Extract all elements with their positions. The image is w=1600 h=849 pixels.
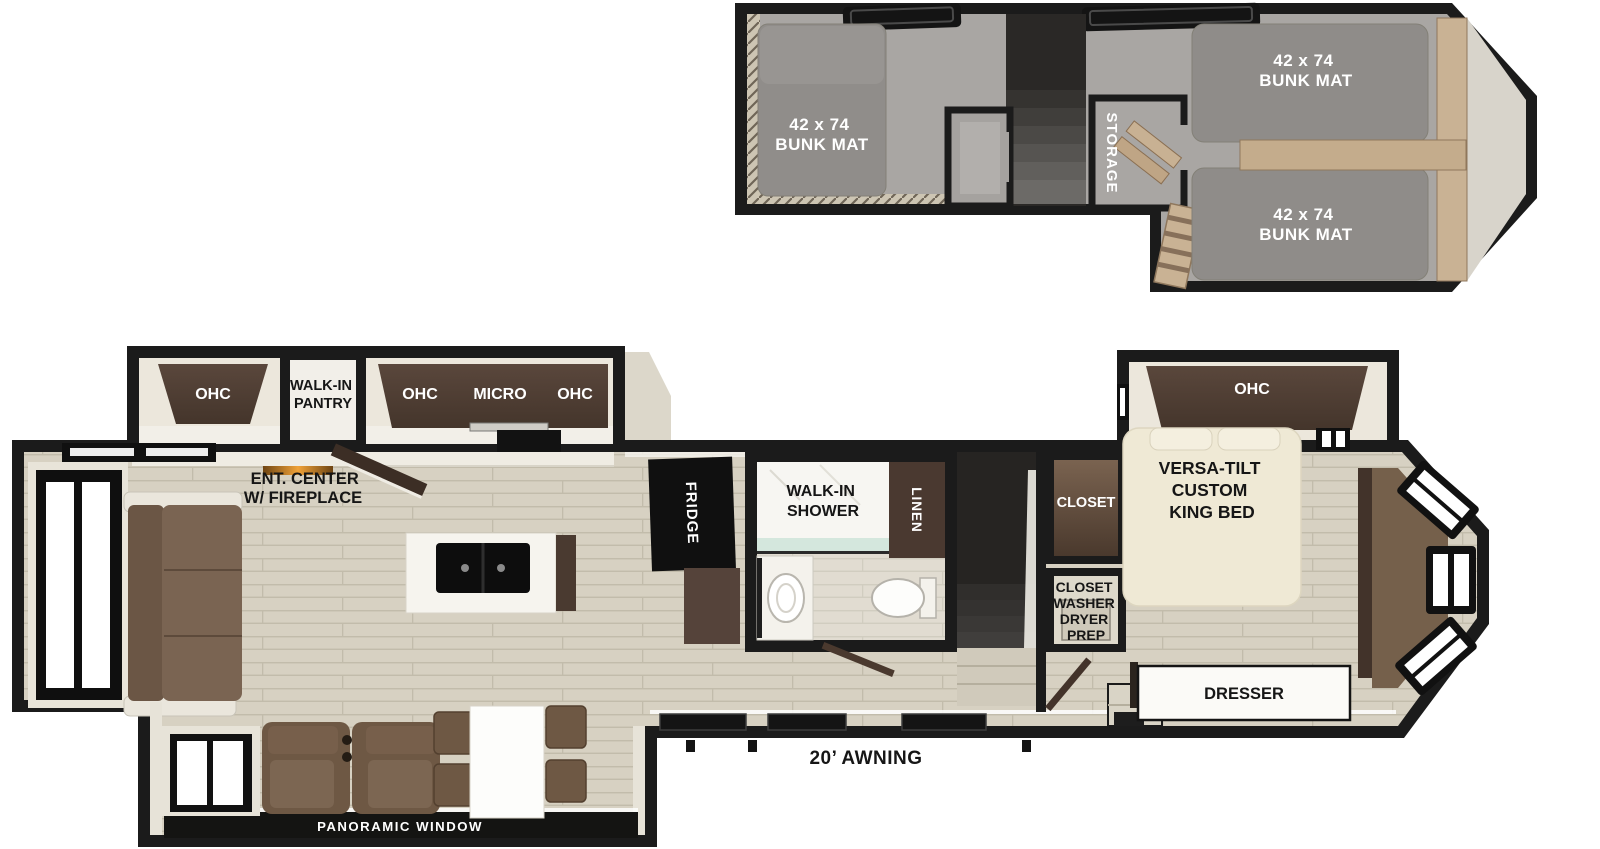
ohc-kitchen-left-label: OHC — [402, 386, 438, 403]
kitchen-counter-edge — [368, 465, 614, 467]
ent-center-label: ENT. CENTER W/ FIREPLACE — [244, 470, 364, 507]
king-bed: VERSA-TILT CUSTOM KING BED — [1123, 428, 1301, 606]
loft-closet-room — [948, 110, 1010, 206]
cupholder — [342, 735, 352, 745]
ohc-rear-label: OHC — [195, 386, 231, 403]
closet-label: CLOSET — [1057, 495, 1116, 511]
king-bed-line3: KING BED — [1169, 502, 1255, 522]
bunk-mat-bottom-right: 42 x 74 BUNK MAT — [1192, 168, 1428, 280]
dinette-chair — [434, 712, 474, 754]
panoramic-window-label: PANORAMIC WINDOW — [317, 819, 483, 834]
washer-dryer-prep: CLOSET WASHER DRYER PREP — [1046, 568, 1126, 652]
front-cap — [1358, 459, 1480, 697]
micro-label: MICRO — [473, 386, 526, 403]
bunk-bottomright-name-label: BUNK MAT — [1259, 225, 1353, 244]
shower-label-2: SHOWER — [787, 503, 859, 520]
pillow-left — [1150, 428, 1212, 450]
wd-label-4: PREP — [1067, 627, 1105, 643]
walk-in-shower: WALK-IN SHOWER — [757, 462, 889, 554]
svg-text:VERSA-TILT CUSTOM: VERSA-TILT CUSTOM KING BED — [1159, 458, 1266, 522]
king-bed-line1: VERSA-TILT — [1159, 458, 1261, 478]
front-cap-carpet-edge — [1358, 468, 1372, 678]
linen-label: LINEN — [909, 487, 924, 533]
shower-label-1: WALK-IN — [787, 483, 855, 500]
ent-center-line1: ENT. CENTER — [251, 470, 359, 488]
sofa — [124, 492, 242, 716]
wd-label-1: CLOSET — [1056, 579, 1113, 595]
ohc-kitchen-right-label: OHC — [557, 386, 593, 403]
dresser-label: DRESSER — [1204, 685, 1284, 703]
dinette-chair — [546, 706, 586, 748]
stairs-to-loft — [957, 450, 1046, 712]
bunk-divider-wood-horizontal — [1240, 140, 1466, 170]
rear-window — [62, 443, 216, 462]
kitchen-island — [406, 533, 576, 613]
storage-room: STORAGE — [1092, 98, 1188, 208]
dinette-table — [470, 706, 544, 818]
loft-floorplan: 42 x 74 BUNK MAT — [735, 3, 1537, 292]
rv-floorplan-page: 42 x 74 BUNK MAT — [0, 0, 1600, 849]
kitchen-slide-return-wall — [617, 352, 671, 450]
bunk-topright-name-label: BUNK MAT — [1259, 71, 1353, 90]
bedroom-slide-window-left — [1117, 384, 1129, 420]
ohc-cabinet-rear: OHC — [158, 364, 268, 424]
side-window — [28, 462, 128, 708]
bedroom-ohc-cabinet: OHC — [1146, 366, 1368, 430]
cupholder — [342, 752, 352, 762]
bunk-bottomright-size-label: 42 x 74 — [1273, 205, 1333, 224]
awning-label: 20’ AWNING — [809, 748, 922, 769]
pantry-label-1: WALK-IN — [290, 378, 352, 394]
wd-label-2: WASHER — [1053, 595, 1114, 611]
bunk-topright-size-label: 42 x 74 — [1273, 51, 1333, 70]
kitchen-ohc-micro-cabinet: OHC MICRO OHC — [378, 364, 608, 428]
walk-in-pantry: WALK-IN PANTRY — [280, 350, 366, 450]
king-bed-line2: CUSTOM — [1172, 480, 1248, 500]
vanity-sink — [757, 556, 813, 640]
linen-cabinet: LINEN — [889, 462, 945, 558]
bunk-left-size-label: 42 x 74 — [789, 115, 849, 134]
island-sink — [436, 543, 530, 593]
dresser: DRESSER — [1130, 662, 1350, 720]
svg-text:ENT. CENTER W/ FIREPLA: ENT. CENTER W/ FIREPLACE — [244, 470, 364, 507]
floorplan-canvas: 42 x 74 BUNK MAT — [0, 0, 1600, 849]
loft-stairs — [1006, 14, 1086, 206]
main-floorplan: OHC WALK-IN PANTRY OHC MICRO OHC — [12, 346, 1489, 847]
toilet — [872, 578, 936, 618]
pantry-label-2: PANTRY — [294, 396, 352, 412]
dinette-chair — [546, 760, 586, 802]
bunk-left-name-label: BUNK MAT — [775, 135, 869, 154]
ent-center-line2: W/ FIREPLACE — [244, 489, 362, 507]
storage-label: STORAGE — [1103, 113, 1120, 194]
entry-mats — [660, 714, 986, 730]
bunk-mat-top-right: 42 x 74 BUNK MAT — [1192, 24, 1428, 142]
front-cap-window-middle — [1426, 546, 1476, 614]
closet: CLOSET — [1046, 452, 1126, 564]
fridge-cabinet — [684, 568, 740, 644]
wd-label-3: DRYER — [1060, 611, 1109, 627]
fridge: FRIDGE — [648, 457, 736, 572]
bedroom-ohc-label: OHC — [1234, 381, 1270, 398]
bedroom-slide-window-right — [1316, 428, 1350, 450]
slide-window-left — [160, 726, 260, 816]
fridge-label: FRIDGE — [682, 481, 701, 544]
dinette-chair — [434, 764, 474, 806]
pillow-right — [1218, 428, 1280, 450]
bunk-mat-left: 42 x 74 BUNK MAT — [758, 24, 886, 196]
bathroom: WALK-IN SHOWER LINEN — [745, 450, 957, 652]
